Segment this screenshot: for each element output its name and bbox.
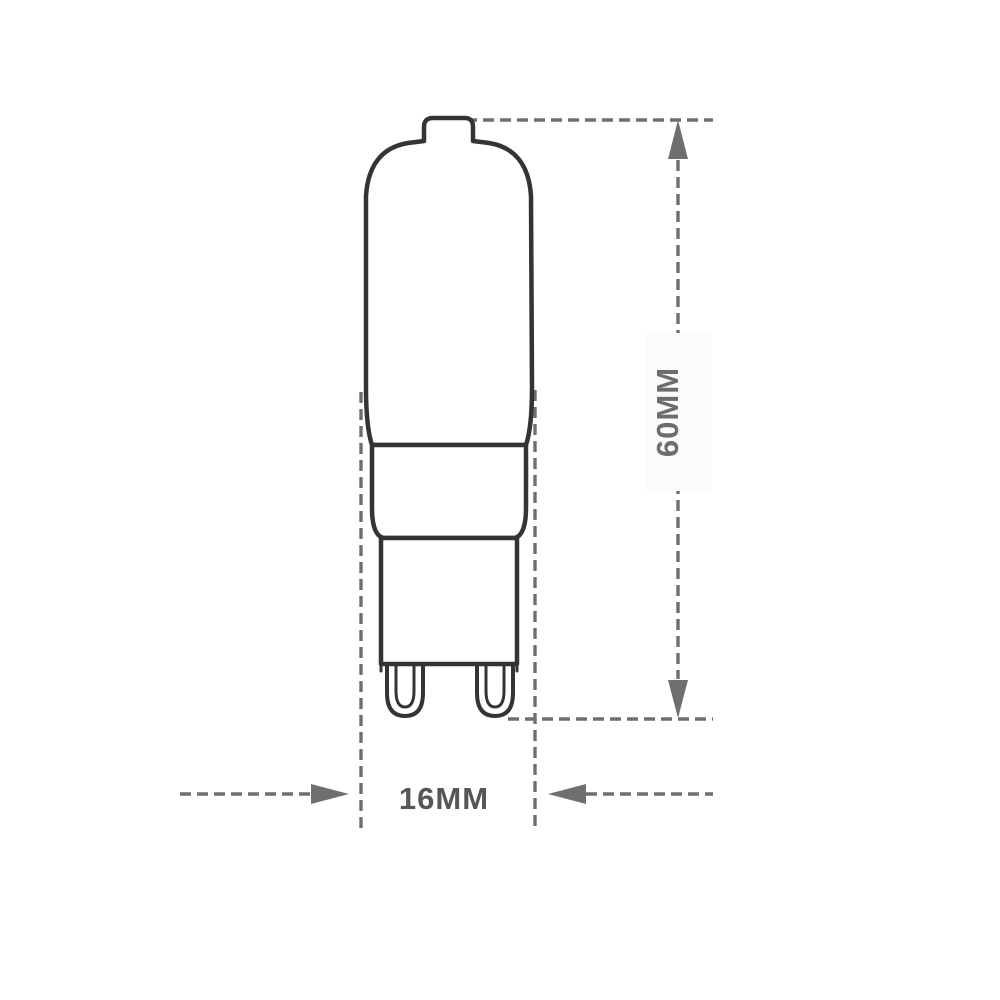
bulb-outline — [366, 118, 532, 716]
bulb-collar — [372, 445, 526, 538]
diagram-canvas — [0, 0, 1000, 1000]
bulb-dimension-diagram: 60MM 16MM — [0, 0, 1000, 1000]
height-dimension-label: 60MM — [651, 332, 685, 492]
arrow-down-icon — [668, 680, 688, 718]
pin-right-inner — [486, 665, 504, 707]
bulb-glass-body — [366, 118, 532, 445]
bulb-base — [381, 538, 517, 664]
arrow-right-icon — [311, 784, 349, 804]
pin-left-inner — [396, 665, 414, 707]
pin-left — [387, 665, 423, 716]
pin-right — [477, 665, 513, 716]
arrow-up-icon — [668, 120, 688, 159]
width-dimension-label: 16MM — [364, 782, 524, 816]
arrow-left-icon — [548, 784, 586, 804]
